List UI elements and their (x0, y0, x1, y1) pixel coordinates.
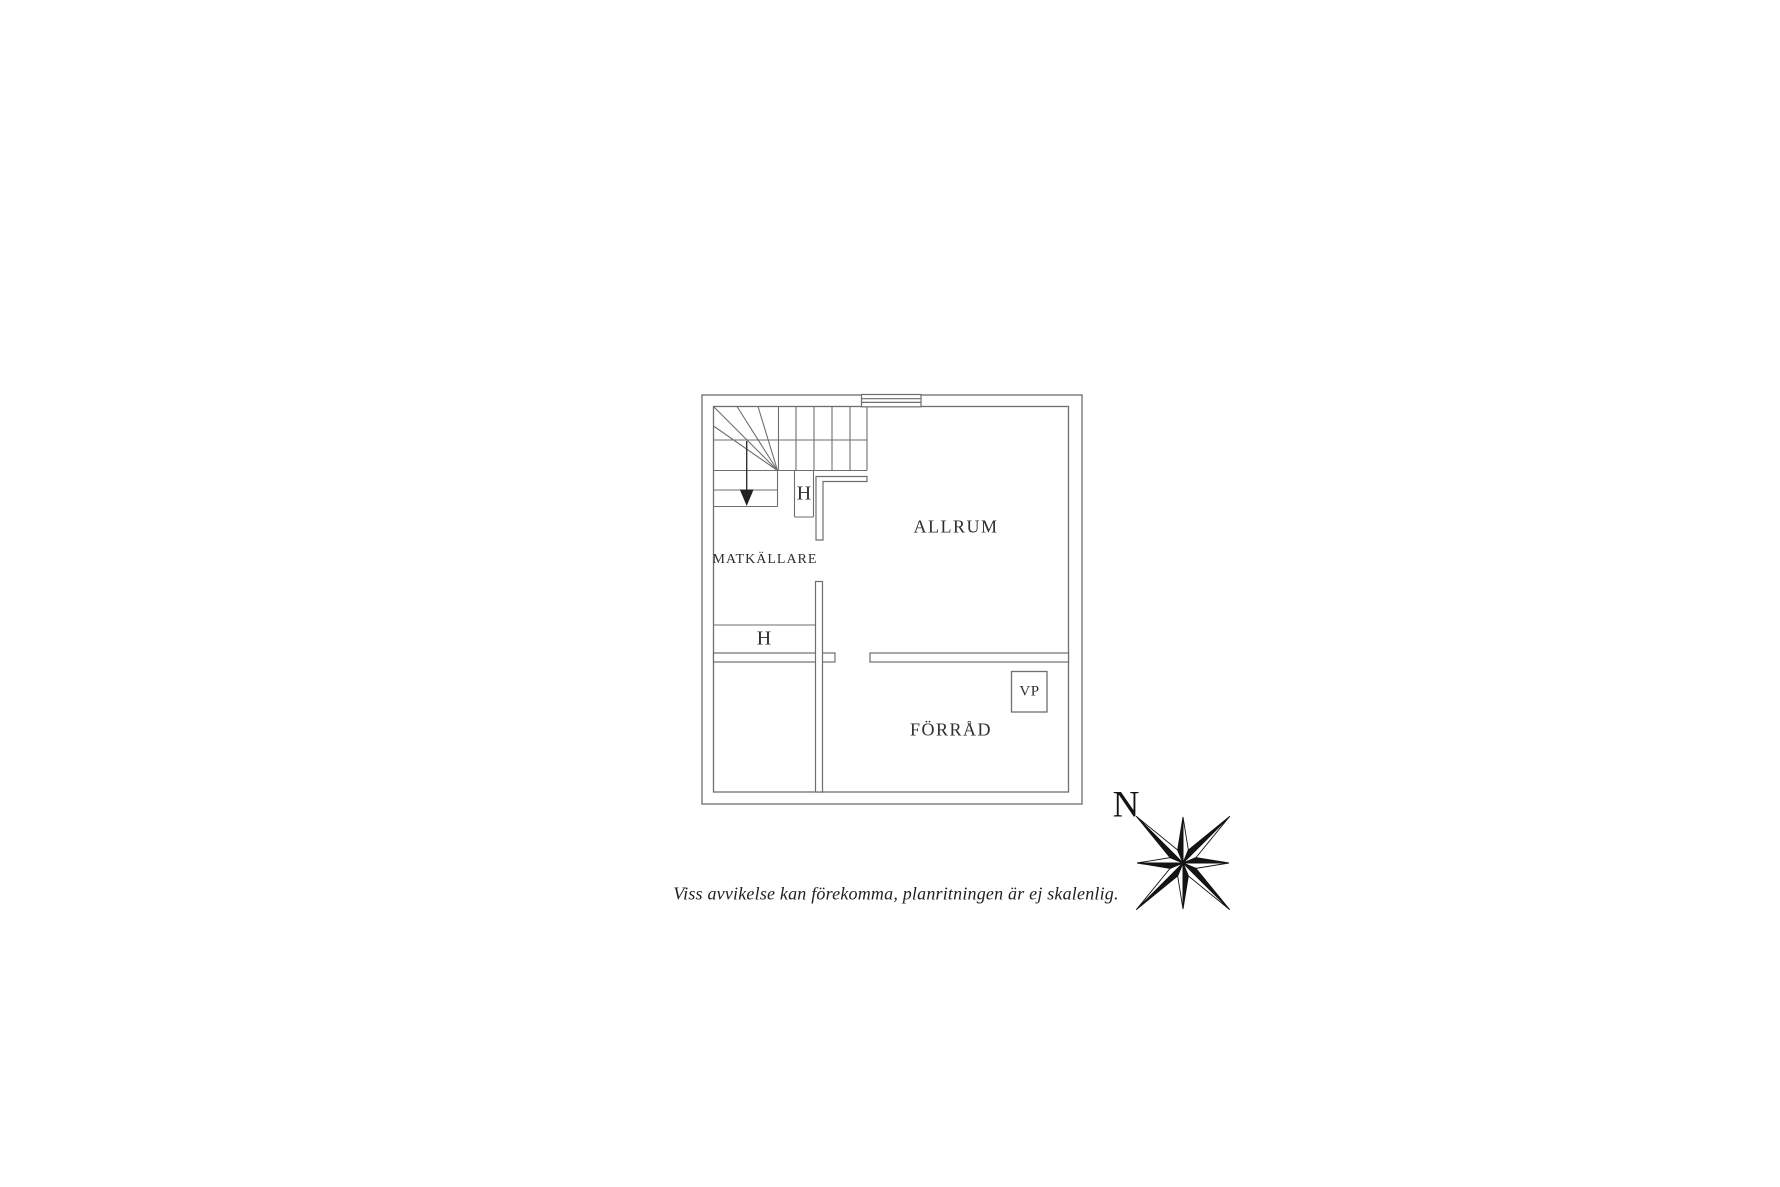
floor-plan-drawing (0, 0, 1780, 1187)
floor-plan-page: MATKÄLLARE ALLRUM FÖRRÅD H H VP N Viss a… (0, 0, 1780, 1187)
compass-rose-icon (1136, 816, 1229, 909)
closet-marker-upper: H (797, 483, 811, 506)
compass-north-label: N (1113, 784, 1140, 827)
disclaimer-text: Viss avvikelse kan förekomma, planritnin… (673, 884, 1118, 905)
heat-pump-label: VP (1019, 684, 1039, 701)
closet-marker-lower: H (757, 628, 771, 651)
room-label-matkallare: MATKÄLLARE (713, 552, 818, 568)
outer-wall (702, 395, 1082, 804)
room-label-allrum: ALLRUM (914, 517, 999, 538)
room-label-forrad: FÖRRÅD (910, 720, 992, 741)
staircase (714, 407, 868, 507)
window-icon (862, 395, 922, 407)
stair-arrow-icon (740, 441, 754, 506)
